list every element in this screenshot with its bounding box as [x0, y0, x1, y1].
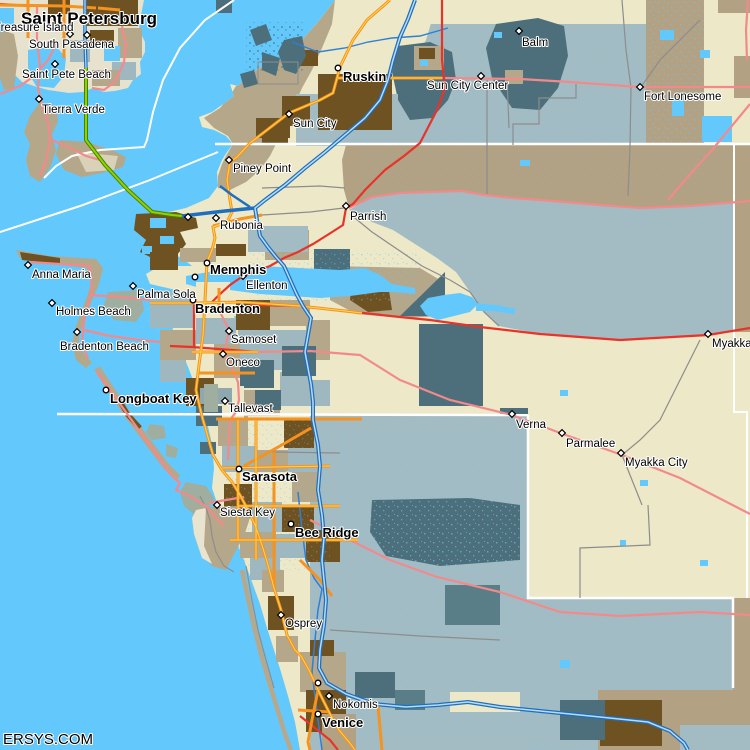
svg-text:Holmes Beach: Holmes Beach [56, 306, 131, 318]
svg-text:Sun City: Sun City [293, 118, 337, 130]
svg-text:Bradenton Beach: Bradenton Beach [60, 341, 149, 353]
svg-text:Sarasota: Sarasota [242, 469, 298, 484]
svg-text:South Pasadena: South Pasadena [29, 39, 115, 51]
svg-text:Venice: Venice [322, 715, 363, 730]
svg-text:Myakka City: Myakka City [625, 457, 688, 469]
svg-text:Tierra Verde: Tierra Verde [42, 104, 105, 116]
svg-text:Longboat Key: Longboat Key [110, 391, 197, 406]
svg-text:Sun City Center: Sun City Center [427, 80, 508, 92]
svg-text:Memphis: Memphis [210, 262, 266, 277]
svg-text:Siesta Key: Siesta Key [220, 507, 275, 519]
svg-text:Parmalee: Parmalee [566, 438, 615, 450]
svg-text:Piney Point: Piney Point [233, 163, 292, 175]
svg-text:ERSYS.COM: ERSYS.COM [3, 731, 93, 748]
svg-text:Palma Sola: Palma Sola [137, 289, 196, 301]
svg-text:Saint Pete Beach: Saint Pete Beach [22, 69, 111, 81]
svg-text:Balm: Balm [522, 37, 548, 49]
svg-text:Osprey: Osprey [285, 618, 322, 630]
svg-text:Anna Maria: Anna Maria [32, 269, 91, 281]
svg-text:Bee Ridge: Bee Ridge [295, 525, 359, 540]
svg-text:Samoset: Samoset [231, 334, 277, 346]
svg-text:Ruskin: Ruskin [343, 69, 386, 84]
svg-text:Nokomis: Nokomis [333, 699, 378, 711]
svg-text:Verna: Verna [516, 419, 547, 431]
svg-text:Tallevast: Tallevast [228, 403, 274, 415]
svg-text:Bradenton: Bradenton [195, 301, 260, 316]
svg-text:Rubonia: Rubonia [220, 220, 263, 232]
svg-text:Parrish: Parrish [350, 211, 386, 223]
svg-text:Treasure Island: Treasure Island [0, 22, 73, 34]
svg-text:Myakka: Myakka [712, 338, 750, 350]
svg-text:Ellenton: Ellenton [246, 280, 288, 292]
svg-text:Fort Lonesome: Fort Lonesome [644, 91, 721, 103]
svg-text:Oneco: Oneco [226, 357, 260, 369]
